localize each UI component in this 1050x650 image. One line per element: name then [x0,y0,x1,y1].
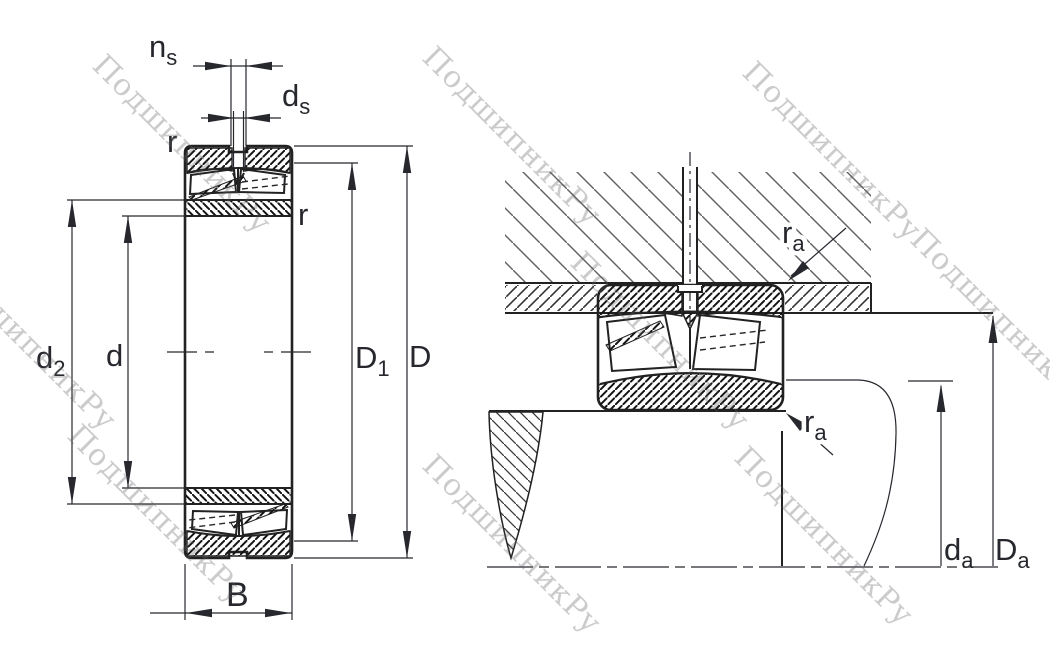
label-r-outer: r [167,124,177,159]
cage-section [606,321,664,351]
label-da: da [944,532,974,573]
bearing-drawing-svg: ns ds r r d2 d D1 D B [0,0,1050,650]
label-ns: ns [149,29,177,70]
left-view-cross-section: ns ds r r d2 d D1 D B [36,29,431,620]
roller-right [693,315,760,370]
label-B: B [226,576,249,614]
dimension-ns [193,59,283,146]
label-r-inner: r [298,197,308,232]
dimension-D [294,146,413,558]
right-view-mounted-section: ra ra da Da [487,152,1030,573]
housing-seat-band-right [785,285,869,311]
shaft-abutment-profile [786,380,896,566]
shaft-shoulder-section [489,412,543,558]
label-d: d [106,338,123,373]
label-D: D [409,339,431,374]
roller-row-and-inner-ring [186,169,291,216]
oil-groove-v [682,312,698,329]
dimension-Da [989,315,998,566]
dimension-ds [201,114,281,122]
label-D1: D1 [355,340,390,381]
label-ra-shaft: ra [804,404,827,445]
inner-ring-section [187,201,292,217]
label-d2: d2 [36,340,66,381]
label-ds: ds [282,78,310,119]
dimension-B [150,564,292,620]
label-Da: Da [995,532,1030,573]
housing-seat-band-left [505,285,597,311]
technical-drawing-page: ns ds r r d2 d D1 D B [0,0,1050,650]
